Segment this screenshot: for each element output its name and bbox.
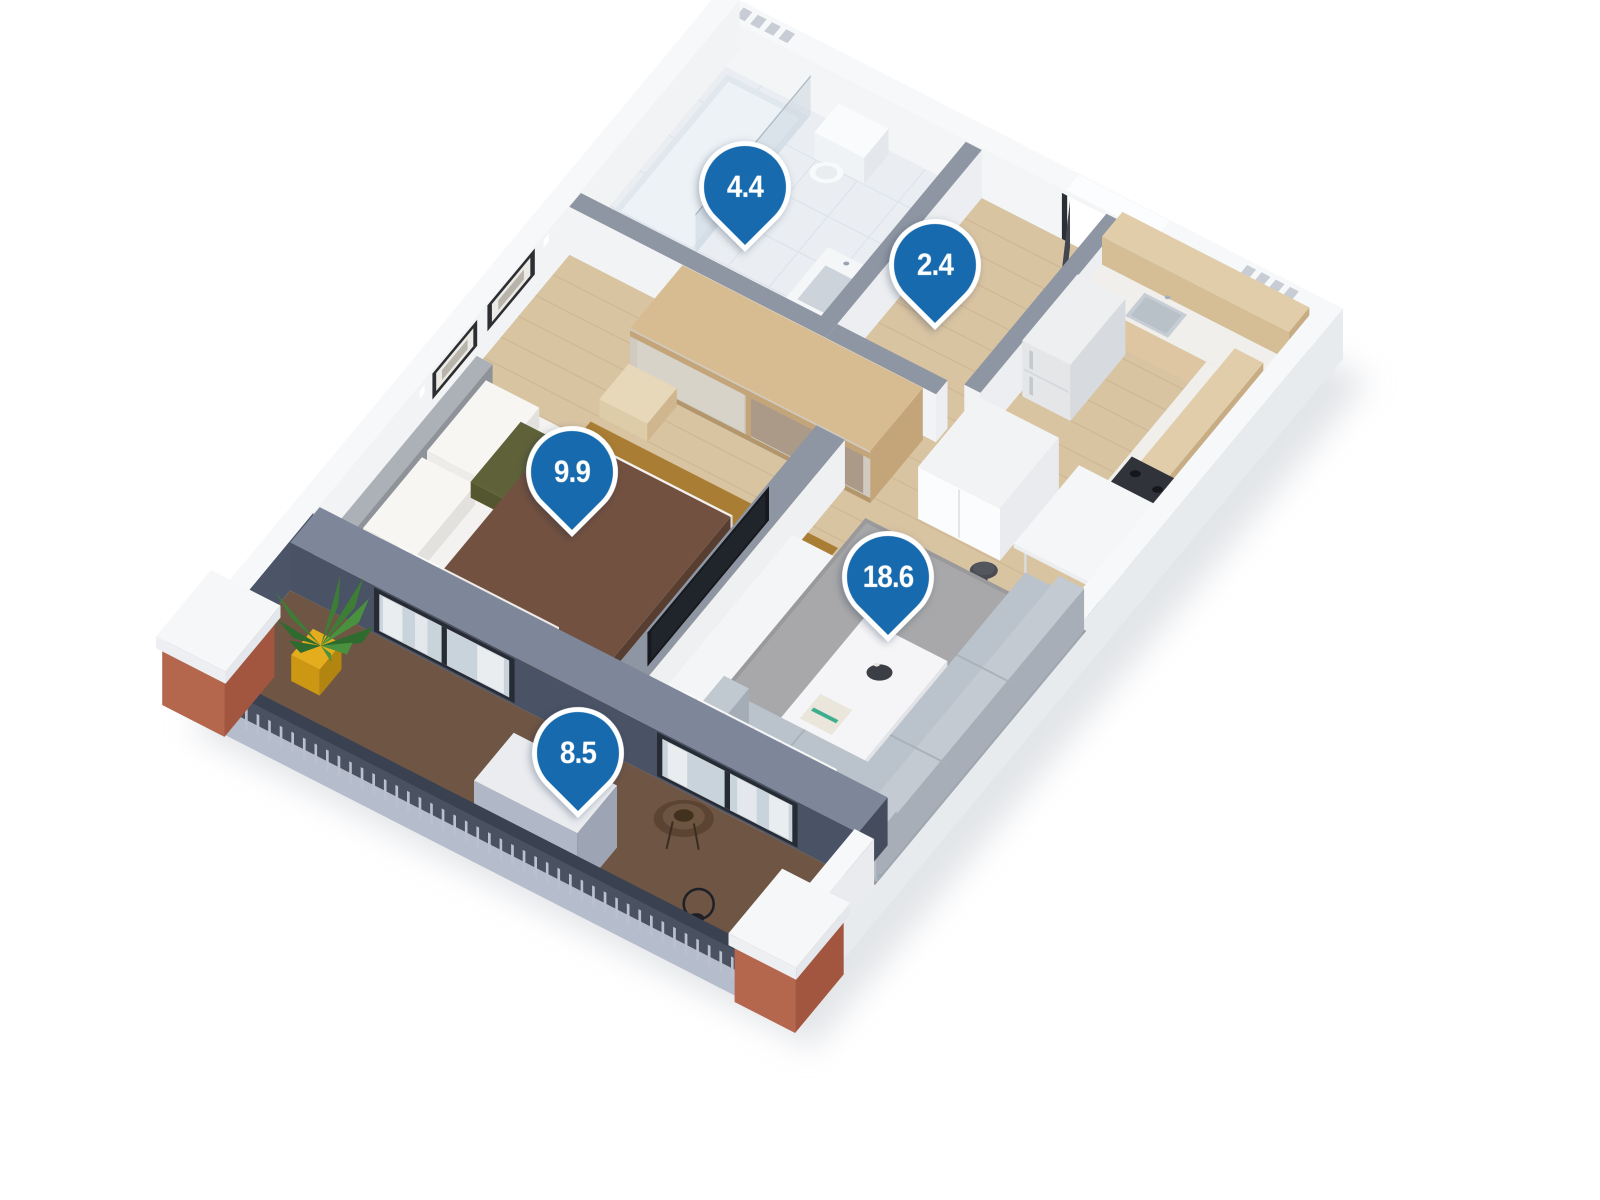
area-pin-bedroom-value: 9.9 (535, 431, 609, 513)
area-pin-hallway-value: 2.4 (898, 224, 972, 306)
area-pin-living-room-value: 18.6 (851, 536, 925, 618)
area-pin-bathroom-value: 4.4 (708, 146, 782, 228)
area-pin-balcony-value: 8.5 (541, 712, 615, 794)
floorplan-render (0, 0, 1600, 1200)
apartment-3d-floorplan: 4.4 2.4 9.9 18.6 8.5 (0, 0, 1600, 1200)
